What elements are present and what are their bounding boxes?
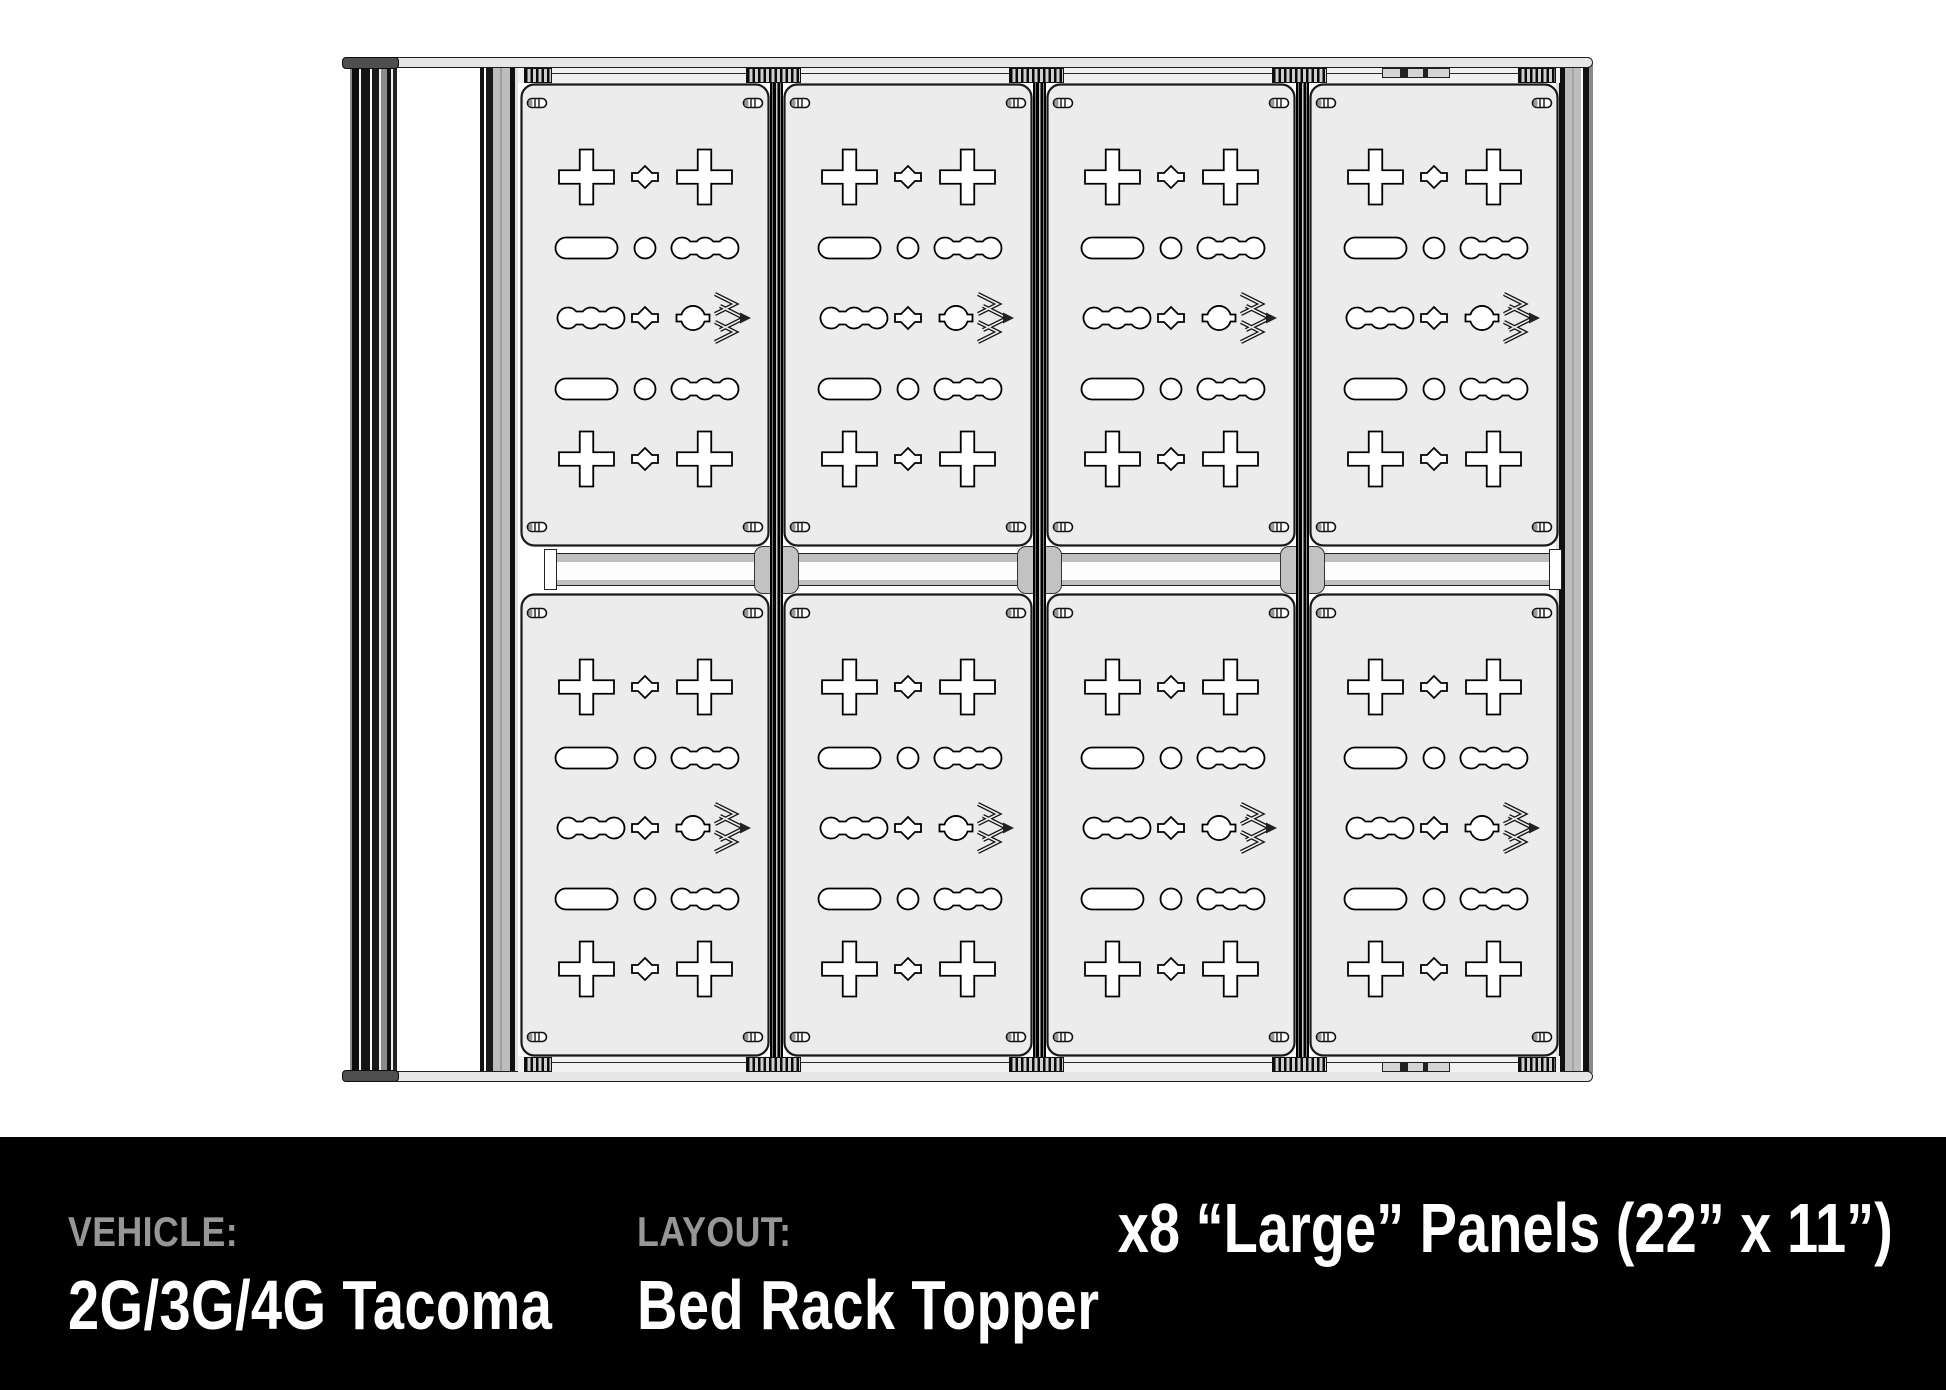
middle-crossbar-left-cap bbox=[544, 549, 557, 590]
top-edge-bar bbox=[350, 57, 1593, 68]
bracket-stripes bbox=[1272, 68, 1327, 83]
middle-crossbar-right-cap bbox=[1549, 549, 1562, 590]
bottom-edge-bar bbox=[350, 1071, 1593, 1082]
latch-tab-top bbox=[1382, 68, 1450, 78]
bracket-stripes bbox=[746, 68, 801, 83]
bracket-stripes bbox=[1518, 68, 1556, 83]
bracket-stripes bbox=[1009, 68, 1064, 83]
bracket-stripes bbox=[746, 1057, 801, 1072]
molle-panel bbox=[1309, 593, 1559, 1057]
molle-panel bbox=[1046, 593, 1296, 1057]
panels-summary: x8 “Large” Panels (22” x 11”) bbox=[1118, 1188, 1893, 1268]
molle-panel bbox=[520, 593, 770, 1057]
bracket-stripes bbox=[1272, 1057, 1327, 1072]
bracket-stripes bbox=[524, 1057, 552, 1072]
vehicle-label: VEHICLE: bbox=[68, 1208, 238, 1256]
bracket-stripes bbox=[524, 68, 552, 83]
bracket-stripes bbox=[1518, 1057, 1556, 1072]
latch-tab-bottom bbox=[1382, 1062, 1450, 1072]
molle-panel bbox=[1046, 83, 1296, 547]
left-inner-rail-extrusion bbox=[480, 62, 518, 1073]
layout-value: Bed Rack Topper bbox=[637, 1265, 1099, 1345]
bottom-left-end-cap bbox=[342, 1070, 399, 1082]
column-gap-stripe bbox=[1033, 83, 1046, 1057]
bracket-stripes bbox=[1009, 1057, 1064, 1072]
molle-panel bbox=[783, 83, 1033, 547]
molle-panel bbox=[1309, 83, 1559, 547]
top-left-end-cap bbox=[342, 57, 399, 69]
layout-label: LAYOUT: bbox=[637, 1208, 791, 1256]
column-gap-stripe bbox=[1296, 83, 1309, 1057]
molle-panel bbox=[520, 83, 770, 547]
column-gap-stripe bbox=[770, 83, 783, 1057]
left-outer-rail-extrusion bbox=[350, 62, 397, 1073]
vehicle-value: 2G/3G/4G Tacoma bbox=[68, 1265, 552, 1345]
molle-panel bbox=[783, 593, 1033, 1057]
screenshot-root: VEHICLE: 2G/3G/4G Tacoma LAYOUT: Bed Rac… bbox=[0, 0, 1946, 1390]
